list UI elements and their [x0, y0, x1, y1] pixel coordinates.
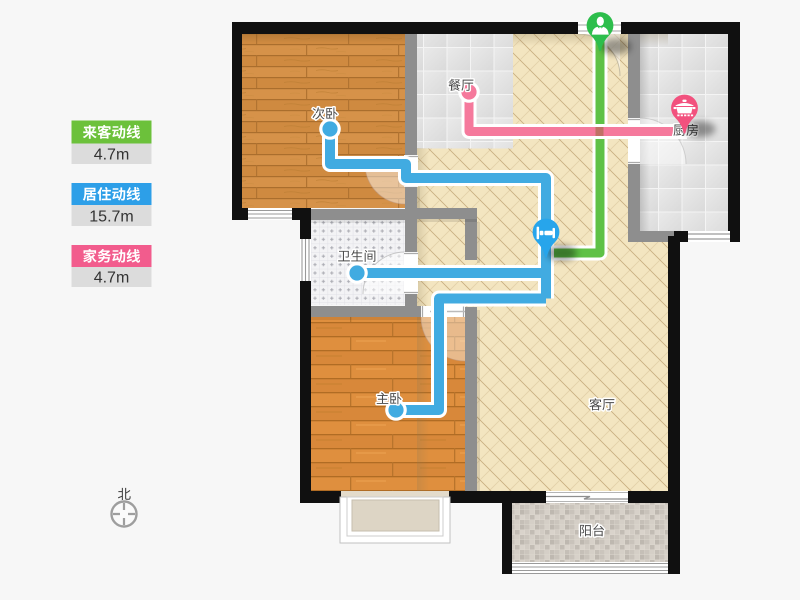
svg-text:4.7m: 4.7m [94, 270, 130, 287]
svg-text:4.7m: 4.7m [94, 147, 130, 164]
svg-text:15.7m: 15.7m [89, 209, 133, 226]
